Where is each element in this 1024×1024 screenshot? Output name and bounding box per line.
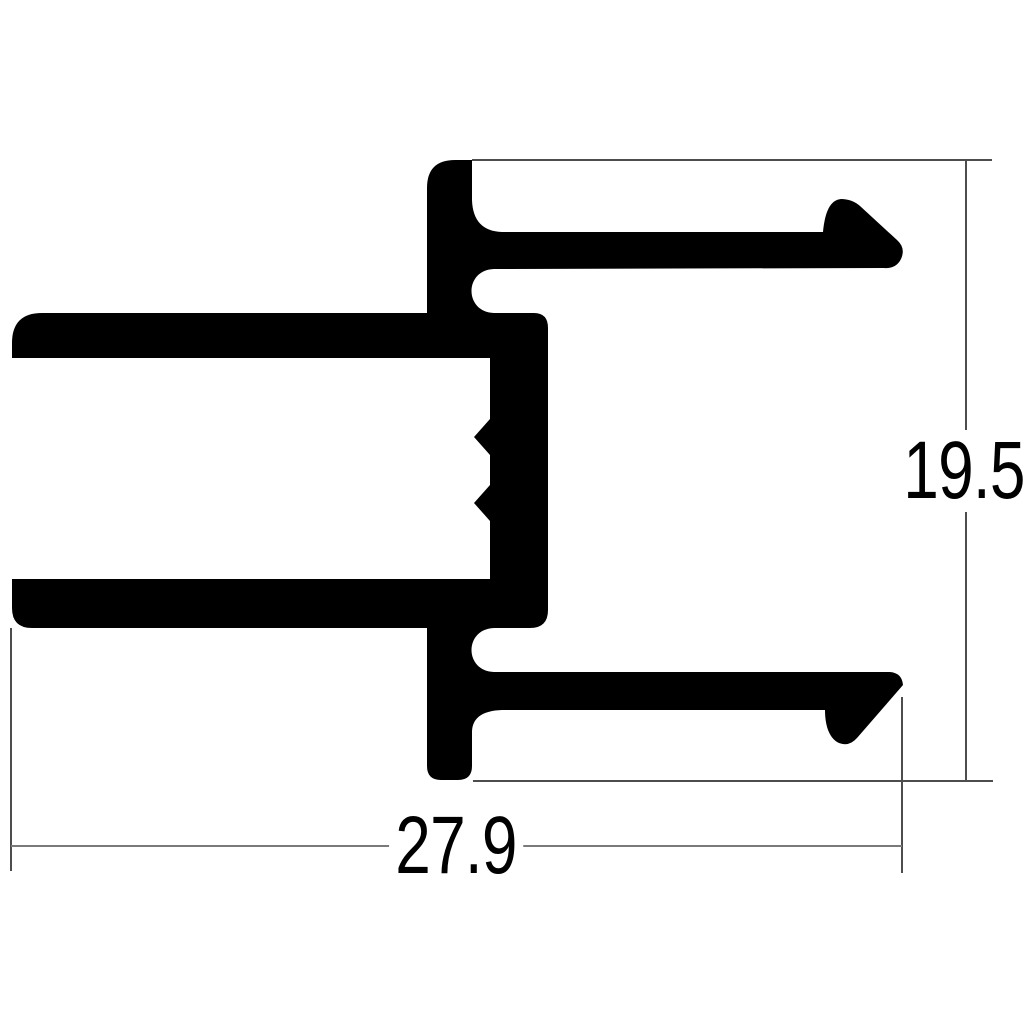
- extrusion-profile-outline: [12, 160, 903, 780]
- dimension-label-width: 27.9: [389, 805, 523, 887]
- dimension-label-height: 19.5: [897, 430, 1024, 512]
- drawing-canvas: 19.5 27.9: [0, 0, 1024, 1024]
